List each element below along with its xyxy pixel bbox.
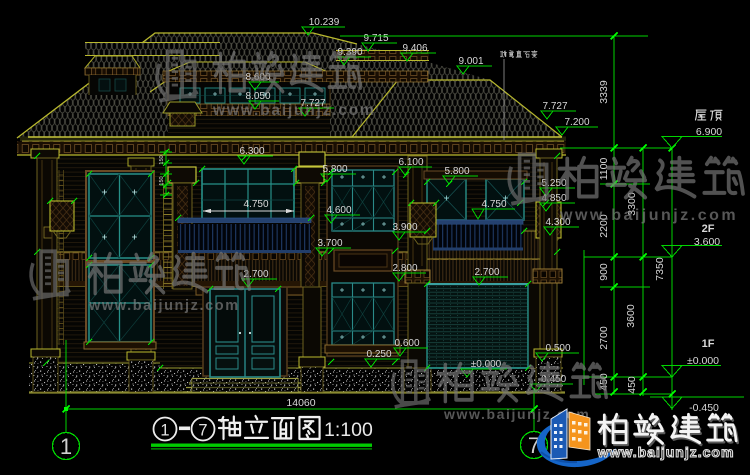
svg-text:6.900: 6.900: [696, 126, 722, 138]
svg-text:5.800: 5.800: [322, 164, 347, 175]
svg-text:-0.450: -0.450: [689, 402, 719, 414]
svg-text:450: 450: [626, 376, 638, 394]
svg-text:4.750: 4.750: [481, 199, 506, 210]
svg-text:1F: 1F: [702, 338, 715, 350]
svg-text:7.727: 7.727: [542, 101, 567, 112]
svg-text:0.500: 0.500: [545, 343, 570, 354]
svg-text:3339: 3339: [598, 80, 610, 104]
svg-text:1: 1: [160, 422, 169, 440]
svg-text:150: 150: [159, 176, 165, 185]
svg-text:1: 1: [60, 434, 72, 459]
svg-text:1:100: 1:100: [324, 419, 373, 441]
svg-text:3.700: 3.700: [317, 238, 342, 249]
svg-text:±0.000: ±0.000: [471, 359, 502, 370]
svg-text:9.001: 9.001: [458, 56, 483, 67]
svg-text:9.715: 9.715: [363, 33, 388, 44]
svg-text:6.300: 6.300: [239, 146, 264, 157]
svg-text:0.600: 0.600: [394, 338, 419, 349]
svg-text:7.200: 7.200: [564, 117, 589, 128]
svg-text:0.250: 0.250: [366, 349, 391, 360]
svg-text:4.600: 4.600: [326, 205, 351, 216]
svg-text:www.baijunjz.com: www.baijunjz.com: [212, 102, 376, 119]
svg-text:www.baijunjz.com: www.baijunjz.com: [88, 298, 240, 314]
svg-text:±0.000: ±0.000: [687, 355, 719, 367]
svg-text:7350: 7350: [654, 257, 666, 281]
svg-text:3.900: 3.900: [392, 222, 417, 233]
svg-text:14060: 14060: [286, 397, 315, 409]
svg-text:2.700: 2.700: [474, 267, 499, 278]
svg-text:www.baijunjz.com: www.baijunjz.com: [559, 207, 738, 224]
svg-text:3.600: 3.600: [694, 236, 720, 248]
svg-text:10.239: 10.239: [309, 17, 340, 28]
svg-text:5.800: 5.800: [444, 166, 469, 177]
svg-text:www.baijunjz.com: www.baijunjz.com: [443, 406, 590, 422]
svg-text:6.100: 6.100: [398, 157, 423, 168]
svg-text:www.baijunjz.com: www.baijunjz.com: [597, 444, 735, 460]
svg-text:2700: 2700: [598, 326, 610, 350]
svg-text:150: 150: [159, 155, 165, 164]
svg-text:7: 7: [198, 422, 207, 440]
svg-text:4.750: 4.750: [243, 199, 268, 210]
svg-text:9.406: 9.406: [402, 43, 427, 54]
svg-text:2F: 2F: [702, 223, 715, 235]
svg-text:3600: 3600: [625, 304, 637, 328]
svg-text:2.800: 2.800: [392, 263, 417, 274]
svg-text:900: 900: [598, 263, 610, 281]
